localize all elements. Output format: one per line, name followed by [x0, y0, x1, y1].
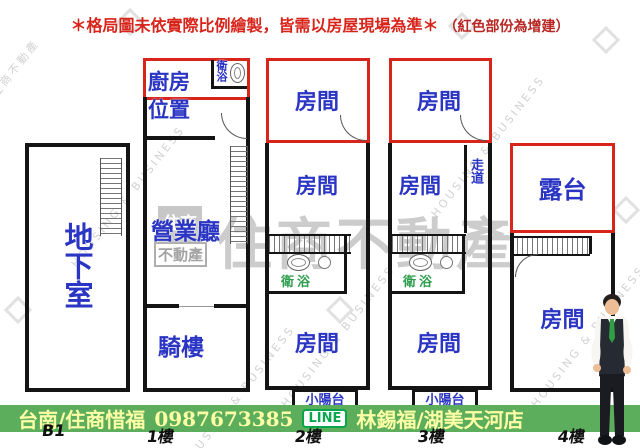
disclaimer-main: ＊格局圖未依實際比例繪製，皆需以房屋現場為準＊ — [70, 16, 438, 35]
floor-tag-3f: 3樓 — [416, 423, 447, 447]
wall — [589, 236, 592, 254]
toilet-icon — [409, 254, 432, 271]
wall — [488, 143, 492, 390]
wall — [366, 143, 370, 390]
wall — [143, 97, 147, 392]
sink-icon — [440, 256, 453, 269]
door-threshold — [179, 306, 214, 307]
floorplan-image: ＊格局圖未依實際比例繪製，皆需以房屋現場為準＊ （紅色部份為增建） 住商不動產 … — [0, 0, 640, 448]
wall — [143, 388, 250, 392]
wall — [269, 291, 347, 294]
third-floor-staircase — [392, 234, 466, 254]
room-label: 房間 — [268, 170, 366, 200]
disclaimer-text: ＊格局圖未依實際比例繪製，皆需以房屋現場為準＊ （紅色部份為增建） — [0, 12, 640, 36]
fourth-floor-staircase — [512, 236, 590, 256]
wall — [392, 291, 464, 294]
diamond-logo-watermark — [326, 296, 354, 324]
floor-tag-1f: 1樓 — [145, 423, 176, 447]
diagonal-watermark: 住商不動產 — [0, 35, 43, 100]
kitchen-label-line2: 位置 — [148, 94, 190, 124]
room-label: 房間 — [390, 84, 488, 116]
bathroom-label: 衛浴 — [403, 271, 435, 290]
room-label: 房間 — [390, 326, 488, 358]
wall — [464, 145, 467, 233]
terrace-label: 露台 — [510, 170, 615, 205]
wall — [143, 136, 215, 140]
kitchen-label-line1: 廚房 — [148, 66, 190, 96]
disclaimer-addition-note: （紅色部份為增建） — [444, 19, 570, 35]
floor-tag-2f: 2樓 — [293, 423, 324, 447]
agency-name: 台南/住商惜福 — [18, 404, 145, 433]
wall — [143, 304, 179, 308]
agent-photo — [582, 292, 640, 448]
business-hall-label: 營業廳 — [151, 212, 220, 246]
room-label: 房間 — [268, 326, 366, 358]
wall — [462, 234, 465, 294]
basement-label: 地下室 — [60, 222, 94, 309]
sink-icon — [318, 256, 331, 269]
door-arc — [515, 254, 538, 277]
wall — [211, 60, 214, 88]
door-arc — [221, 113, 247, 139]
wall — [246, 97, 250, 392]
wall — [214, 304, 250, 308]
second-floor-staircase — [269, 234, 351, 254]
toilet-icon — [287, 254, 310, 271]
wall — [344, 234, 347, 294]
toilet-icon — [230, 63, 245, 83]
corridor-label: 走道 — [468, 158, 483, 184]
agent-photo-graphic — [582, 292, 640, 448]
first-floor-staircase — [230, 146, 248, 244]
basement-staircase — [100, 158, 122, 236]
room-label: 房間 — [399, 170, 441, 200]
floor-tag-b1: B1 — [41, 421, 67, 440]
diamond-logo-watermark — [612, 196, 640, 224]
arcade-label: 騎樓 — [158, 328, 204, 362]
kitchen-bath-label: 衛浴 — [215, 60, 228, 82]
wall — [211, 86, 247, 89]
bathroom-label: 衛浴 — [281, 271, 313, 290]
room-label: 房間 — [268, 84, 366, 116]
